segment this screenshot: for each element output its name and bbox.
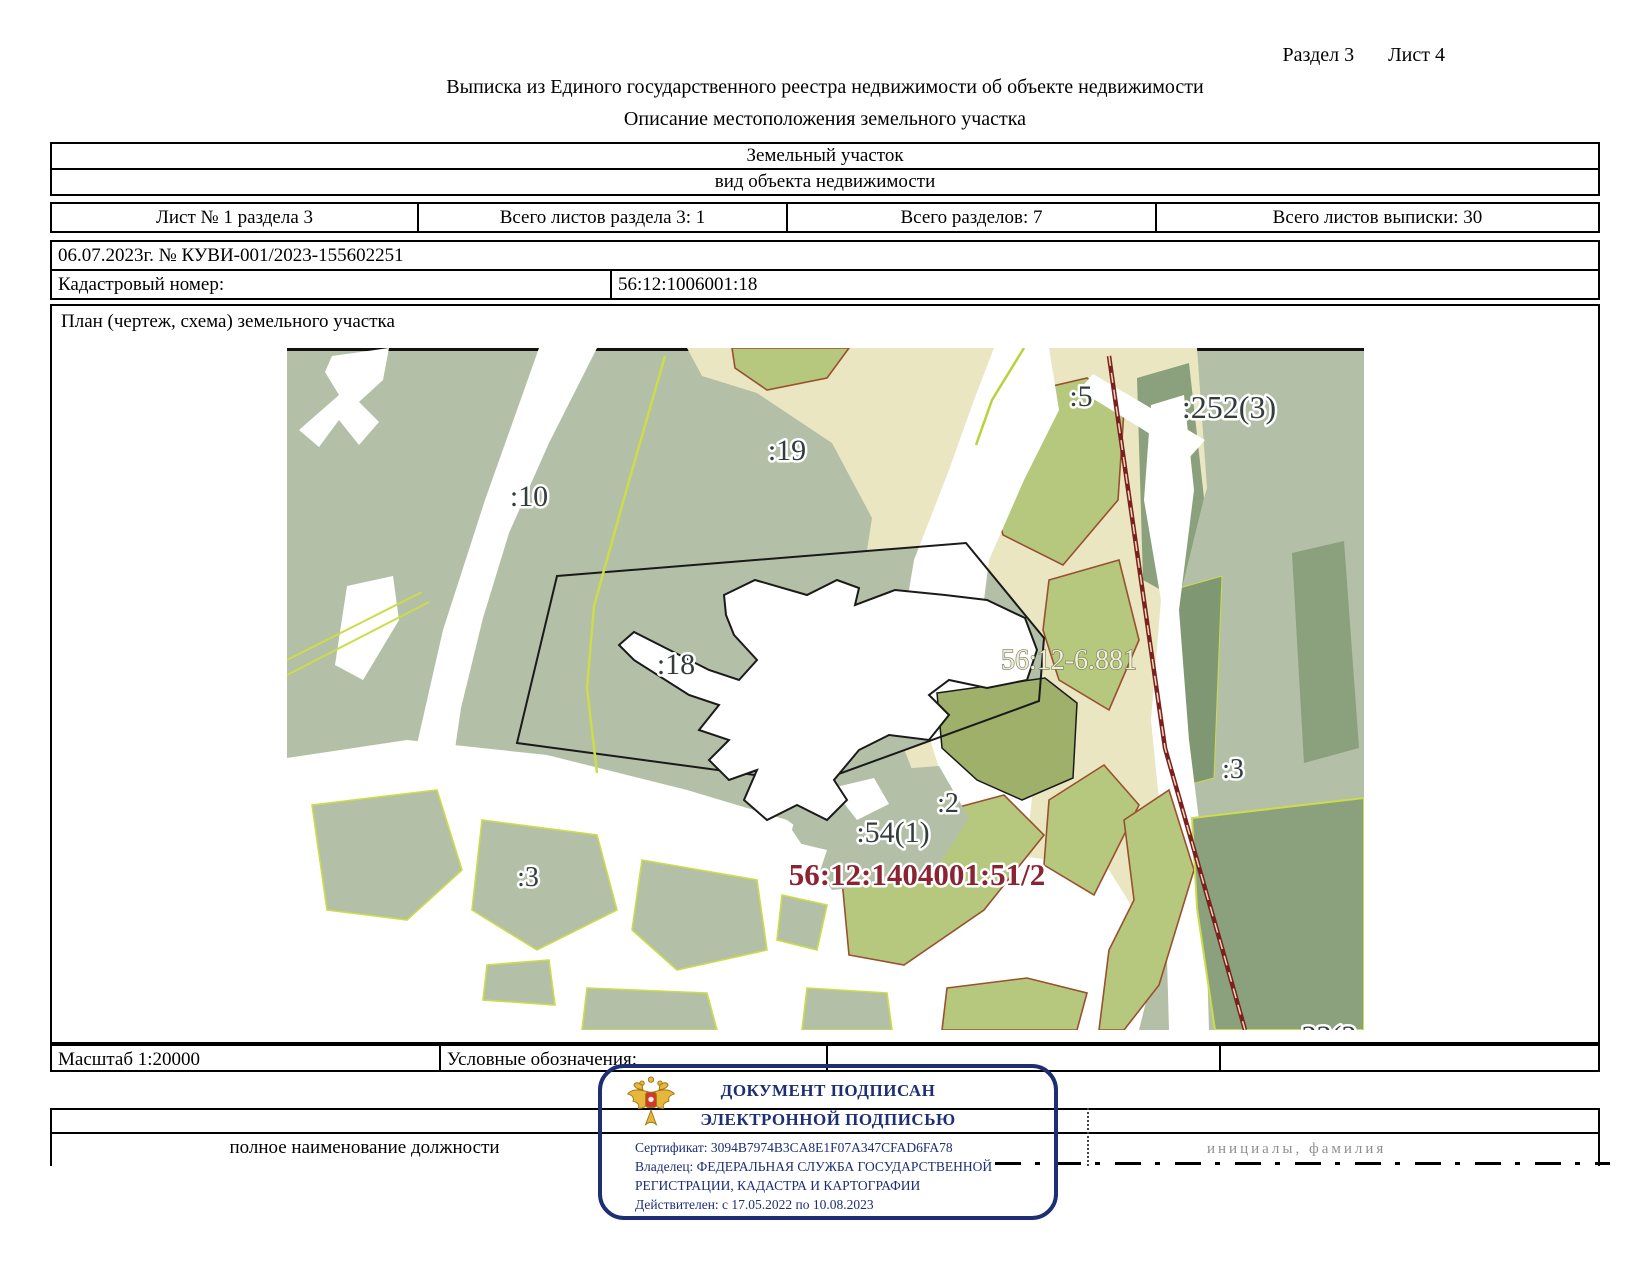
map-scale: Масштаб 1:20000 [52,1046,441,1070]
legend-empty-cell-2 [1221,1046,1598,1070]
signature-stamp: ДОКУМЕНТ ПОДПИСАН ЭЛЕКТРОННОЙ ПОДПИСЬЮ С… [598,1064,1058,1220]
dotted-column-divider [1087,1108,1089,1166]
map-label-parcel-2: :2 [937,788,959,819]
map-label-parcel-19: :19 [767,434,805,467]
stamp-certificate: Сертификат: 3094B7974B3CA8E1F07A347CFAD6… [632,1140,956,1155]
map-label-zone-56-12-1404001-51-2: 56:12:1404001:51/2 [788,857,1045,892]
map-label-parcel-3-left: :3 [517,862,539,893]
dark-forest-bottom-right [1192,798,1364,1030]
object-type-table: Земельный участок вид объекта недвижимос… [50,142,1600,196]
section-number: Раздел 3 [1283,44,1355,67]
egrn-extract-page: { "page": { "section_label": "Раздел 3",… [0,0,1650,1275]
cadastral-number-label: Кадастровый номер: [52,271,612,298]
dash-dot-line [995,1162,1610,1165]
map-label-parcel-3-right: :3 [1222,754,1244,785]
map-label-parcel-252-3: :252(3) [1181,389,1275,425]
map-label-parcel-33-2-partial: 33(2 [1301,1020,1356,1030]
stamp-title-line2: ЭЛЕКТРОННОЙ ПОДПИСЬЮ [697,1110,958,1129]
cadastral-map-svg: :10 :19 :5 :252(3) :18 56:12-6.881 :3 :2… [287,348,1364,1030]
position-caption: полное наименование должности [52,1134,677,1166]
map-label-zone-56-12-6881: 56:12-6.881 [1000,645,1136,676]
stamp-owner-line2: РЕГИСТРАЦИИ, КАДАСТРА И КАРТОГРАФИИ [632,1178,923,1193]
page-corner: Раздел 3 Лист 4 [1283,44,1445,67]
object-type-value: Земельный участок [52,144,1598,170]
document-title: Выписка из Единого государственного реес… [50,76,1600,99]
sections-total-cell: Всего разделов: 7 [788,204,1157,231]
coat-of-arms-icon [624,1074,678,1132]
cadastral-number-value: 56:12:1006001:18 [612,271,1598,298]
plan-caption: План (чертеж, схема) земельного участка [52,306,1598,338]
statement-table: 06.07.2023г. № КУВИ-001/2023-155602251 К… [50,240,1600,300]
stamp-validity: Действителен: с 17.05.2022 по 10.08.2023 [632,1197,877,1212]
sheet-number-cell: Лист № 1 раздела 3 [52,204,419,231]
section-sheets-cell: Всего листов раздела 3: 1 [419,204,788,231]
document-subtitle: Описание местоположения земельного участ… [50,108,1600,131]
map-label-parcel-10: :10 [509,480,547,513]
stamp-title-line1: ДОКУМЕНТ ПОДПИСАН [718,1081,939,1100]
sheet-number: Лист 4 [1388,44,1445,67]
sheet-info-table: Лист № 1 раздела 3 Всего листов раздела … [50,202,1600,233]
map-label-parcel-5: :5 [1069,380,1092,413]
stamp-owner-line1: Владелец: ФЕДЕРАЛЬНАЯ СЛУЖБА ГОСУДАРСТВЕ… [632,1159,995,1174]
map-label-parcel-18: :18 [656,648,694,681]
name-caption: инициалы, фамилия [1207,1141,1386,1157]
cadastral-map: :10 :19 :5 :252(3) :18 56:12-6.881 :3 :2… [287,348,1364,1030]
map-label-parcel-54-1: :54(1) [856,816,929,849]
statement-date-number: 06.07.2023г. № КУВИ-001/2023-155602251 [52,242,1598,271]
object-type-caption: вид объекта недвижимости [52,170,1598,194]
statement-sheets-cell: Всего листов выписки: 30 [1157,204,1598,231]
plan-section: План (чертеж, схема) земельного участка [50,304,1600,1044]
